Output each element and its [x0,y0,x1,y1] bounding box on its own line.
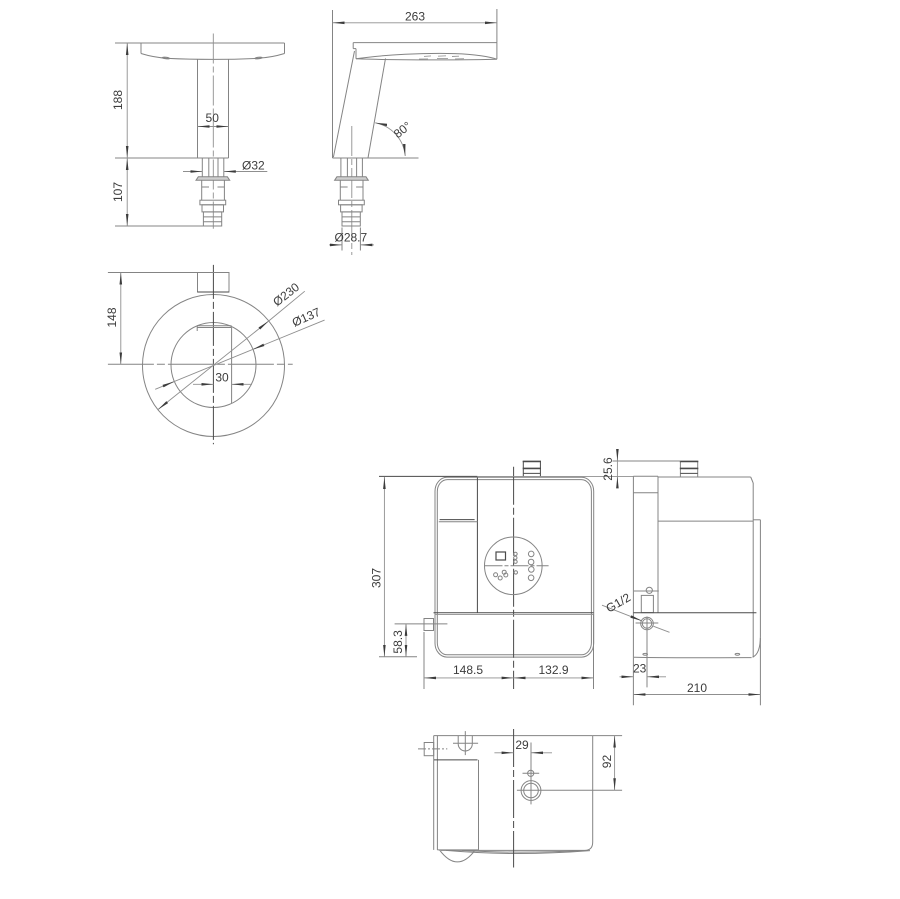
svg-text:Ø28.7: Ø28.7 [335,231,368,245]
svg-text:Ø230: Ø230 [270,280,302,309]
svg-text:210: 210 [687,681,707,695]
svg-text:148.5: 148.5 [453,663,483,677]
svg-text:23: 23 [633,662,647,676]
svg-text:30: 30 [215,371,229,385]
svg-text:80°: 80° [391,119,414,141]
svg-text:188: 188 [111,90,125,110]
svg-text:263: 263 [405,10,425,24]
svg-text:50: 50 [206,111,220,125]
svg-text:25.6: 25.6 [601,457,615,481]
svg-text:132.9: 132.9 [538,663,568,677]
svg-text:107: 107 [111,182,125,202]
svg-text:92: 92 [600,755,614,769]
svg-text:148: 148 [105,307,119,327]
svg-text:Ø137: Ø137 [290,305,323,330]
svg-text:29: 29 [515,738,529,752]
svg-text:Ø32: Ø32 [242,159,265,173]
svg-text:307: 307 [370,568,384,588]
svg-text:58.3: 58.3 [391,630,405,654]
